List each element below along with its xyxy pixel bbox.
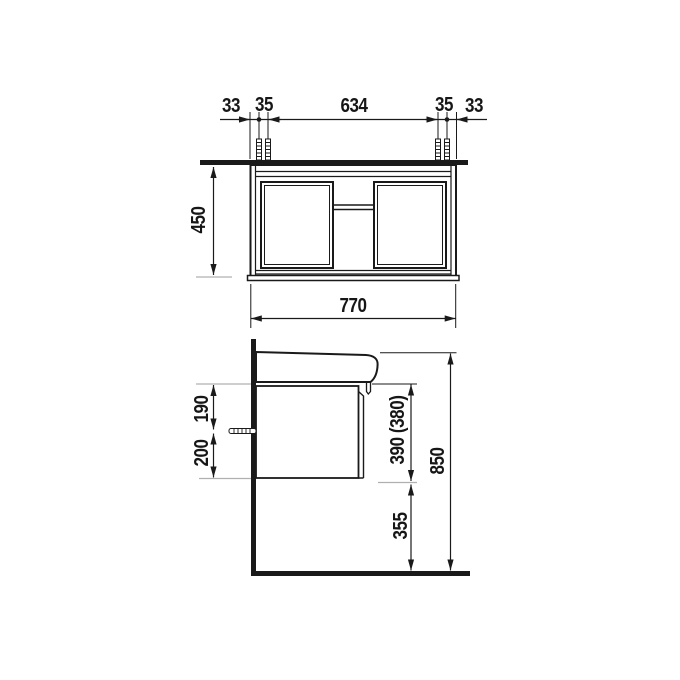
dim-side-top-to-screw: 190 xyxy=(192,395,212,422)
hanger-bolt-icon xyxy=(257,139,450,160)
dim-side-body-height: 390 (380) xyxy=(388,396,408,465)
dim-front-left-bolt-gap: 35 xyxy=(255,95,273,115)
basin-bracket xyxy=(367,382,371,394)
dim-front-left-offset: 33 xyxy=(222,96,240,116)
left-door xyxy=(261,182,333,268)
floor-line xyxy=(251,571,470,576)
dim-front-width: 770 xyxy=(339,296,366,316)
washbasin-profile xyxy=(256,352,378,382)
dim-front-height: 450 xyxy=(189,206,209,233)
dim-front-bolt-span: 634 xyxy=(340,96,367,116)
right-door xyxy=(374,182,446,268)
technical-drawing-canvas: 33 35 634 35 33 450 770 190 200 390 (380… xyxy=(0,0,680,680)
dim-side-floor-clearance: 355 xyxy=(391,512,411,539)
dim-front-right-bolt-gap: 35 xyxy=(435,95,453,115)
dim-front-right-offset: 33 xyxy=(465,96,483,116)
dim-side-screw-to-bottom: 200 xyxy=(192,439,212,466)
mounting-screw-icon xyxy=(229,429,256,434)
dim-side-total-height: 850 xyxy=(428,447,448,474)
cabinet-side xyxy=(256,386,364,478)
